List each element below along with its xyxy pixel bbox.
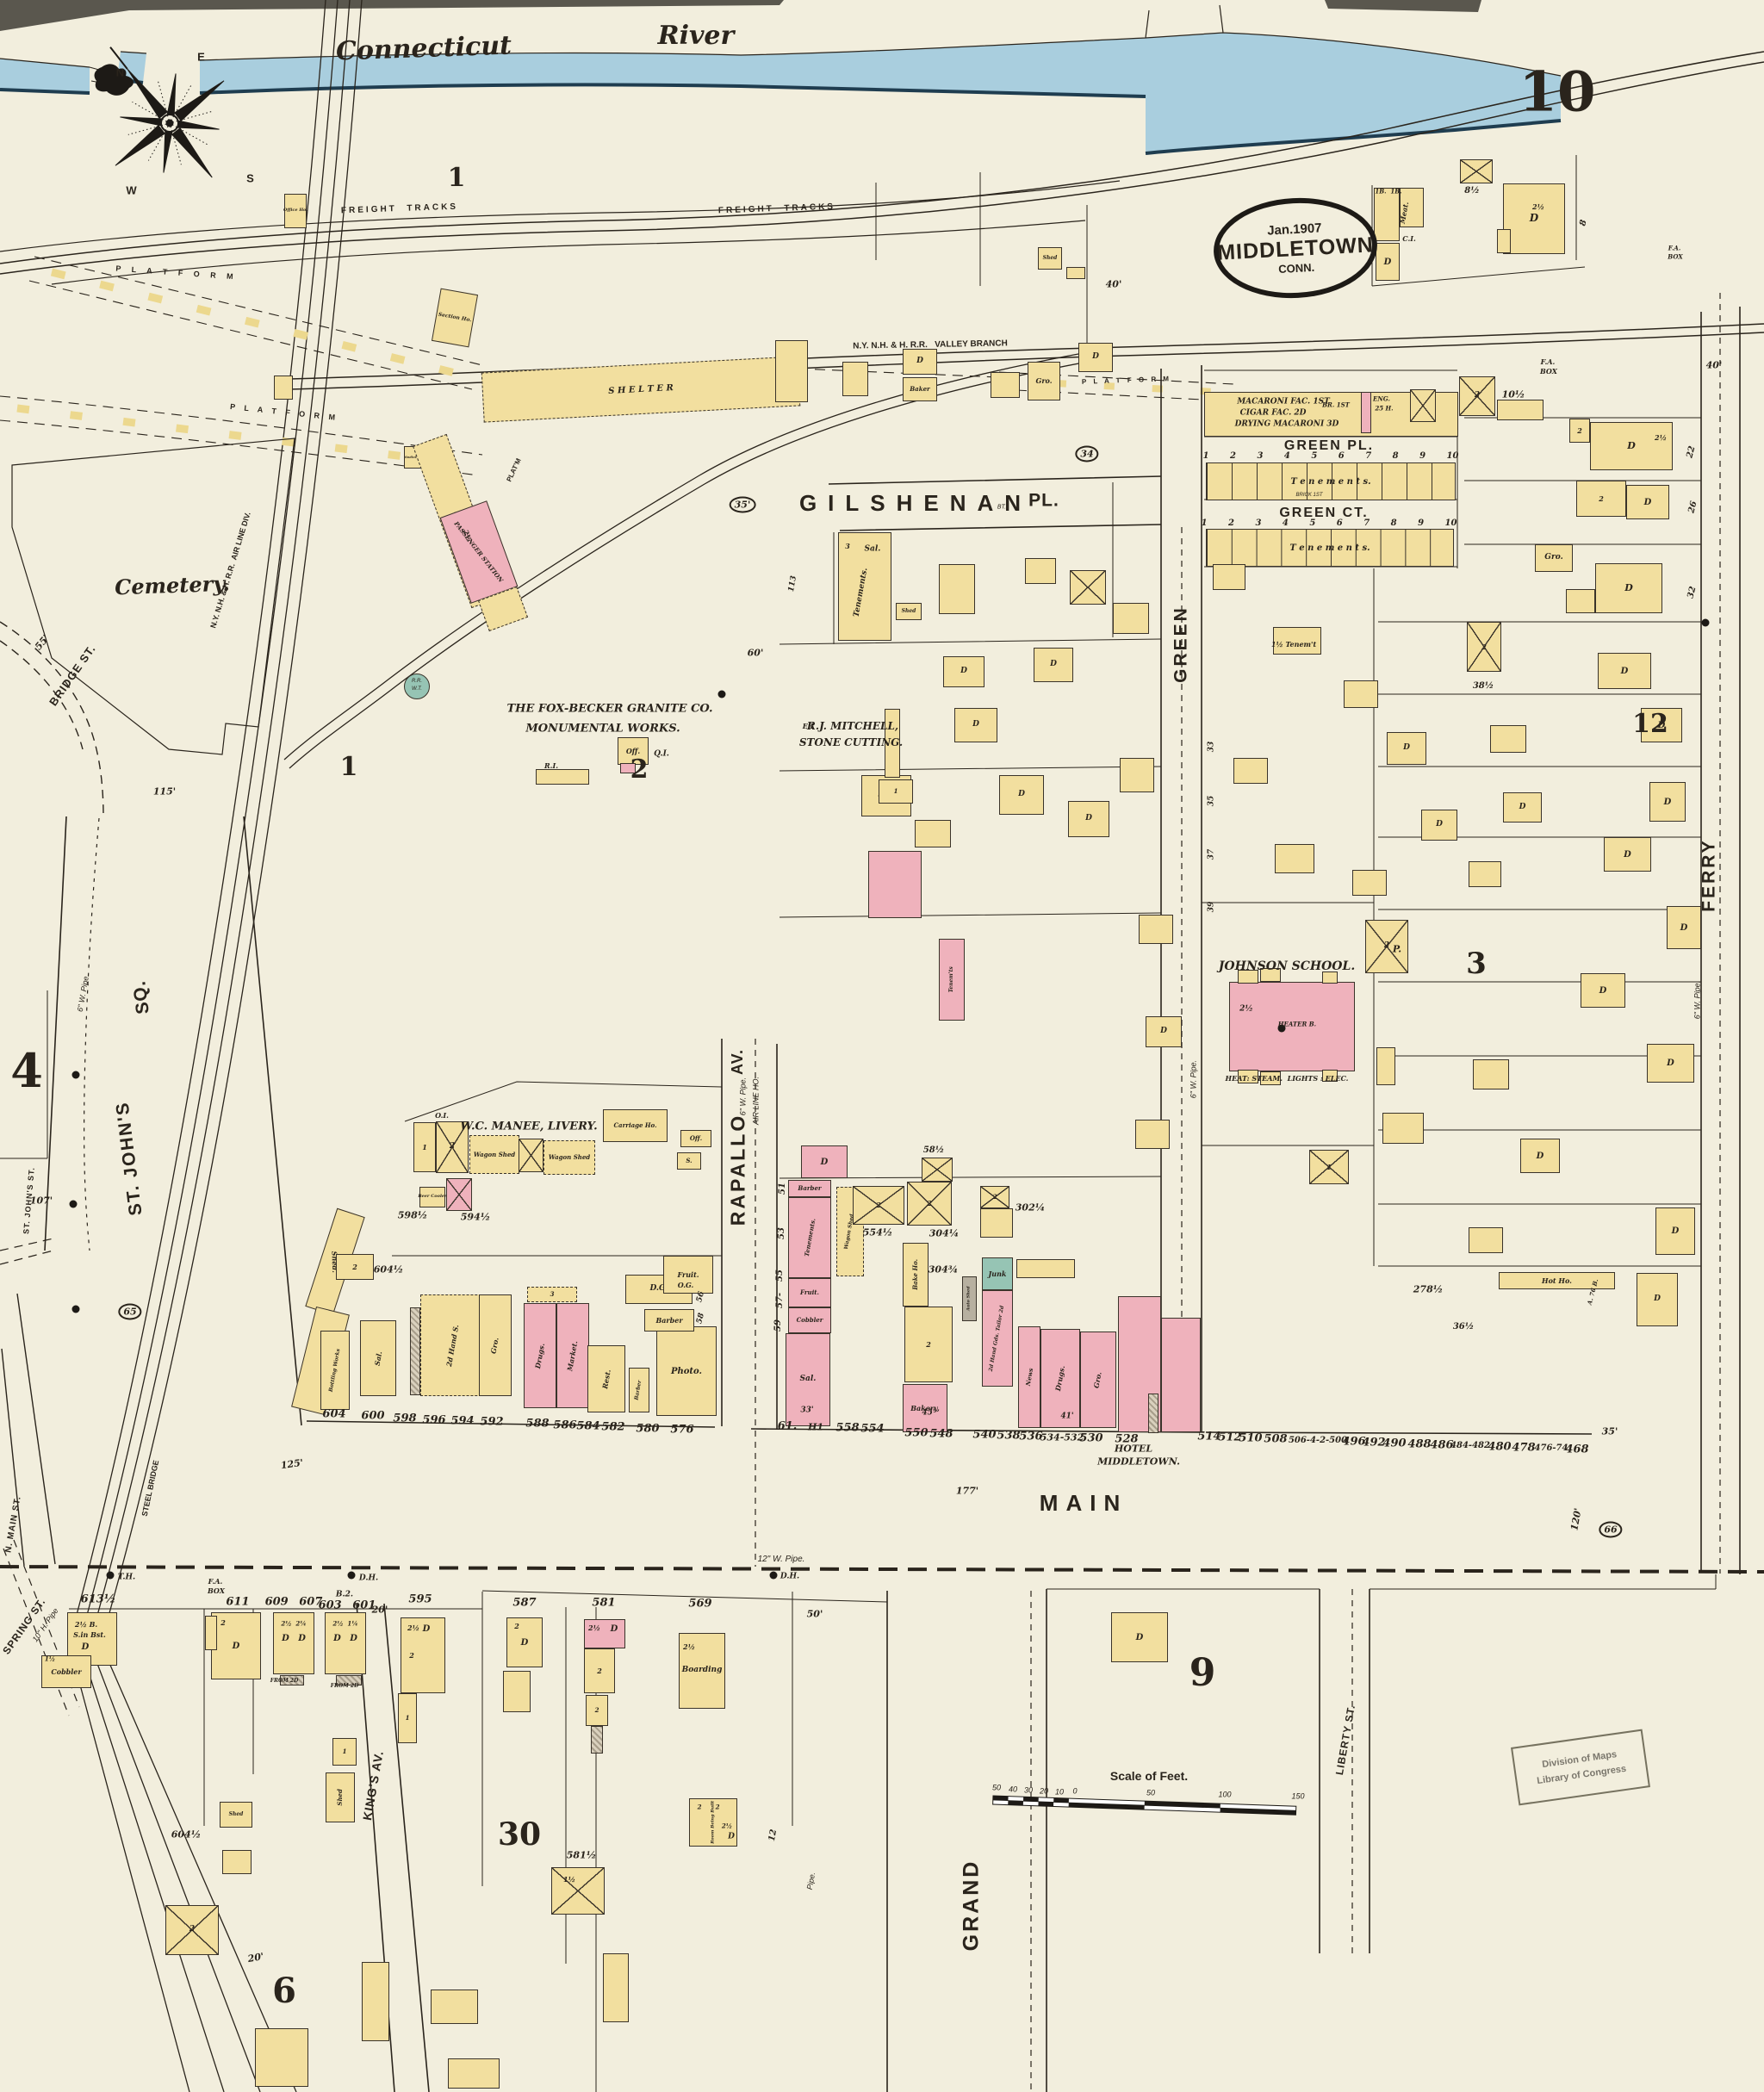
place-label: O.I. <box>435 1112 449 1119</box>
house-number: 538 <box>997 1431 1020 1442</box>
macaroni-factory-label: MACARONI FAC. 1ST <box>1237 399 1330 407</box>
building: D <box>506 1617 543 1667</box>
connecticut-river <box>0 5 1561 153</box>
block-number: 3 <box>1466 949 1487 978</box>
block-number: 30 <box>498 1819 541 1850</box>
place-label: 2 <box>220 1619 226 1626</box>
place-label: R.I. <box>544 762 558 769</box>
building <box>1135 1120 1170 1149</box>
building-label: 2 <box>927 1200 932 1207</box>
place-label: F.A. <box>1541 358 1556 365</box>
compass-letter: S <box>246 173 255 184</box>
house-number: 36½ <box>1453 1323 1474 1332</box>
building-label: Fruit. <box>800 1289 819 1296</box>
building <box>1025 558 1056 584</box>
house-number: 609 607 <box>265 1597 323 1608</box>
place-label: 1½ <box>45 1656 55 1662</box>
sanborn-map-sheet: 10 Jan.1907 MIDDLETOWN CONN. Division of… <box>0 0 1764 2092</box>
building-label: 2 <box>352 1263 357 1271</box>
house-number: 488 <box>1407 1439 1431 1450</box>
building-label: Bottling Works <box>328 1348 341 1392</box>
building: D <box>211 1612 261 1679</box>
building: Fruit. <box>788 1278 831 1307</box>
place-label: 2½ <box>722 1823 732 1829</box>
place-label: 1½ Tenem't <box>1271 641 1316 648</box>
building: Shed <box>326 1772 355 1822</box>
block-number: 4 <box>10 1047 43 1094</box>
house-number: 600 <box>361 1411 384 1422</box>
house-number: 53 <box>778 1227 786 1239</box>
map-linework <box>0 0 1764 2092</box>
building-label: 2 <box>876 1201 881 1209</box>
place-label: D <box>728 1834 735 1841</box>
house-number: 278½ <box>1413 1285 1443 1294</box>
building: Wagon Shed <box>469 1135 519 1174</box>
place-label: 1½ <box>563 1876 575 1883</box>
building-label: 2 <box>450 1143 455 1152</box>
house-number: 304¼ <box>929 1229 959 1238</box>
building-label: D <box>521 1638 529 1648</box>
building-label: Drugs. <box>1054 1365 1066 1392</box>
house-number: 604½ <box>171 1830 201 1840</box>
building-label: PASSENGER STATION <box>453 520 505 584</box>
manee-livery-label: W.C. MANEE, LIVERY. <box>460 1121 597 1133</box>
place-label: Q.I. <box>654 751 669 759</box>
building-label: D <box>1624 850 1631 860</box>
building-label: Tenements. <box>803 1218 816 1257</box>
house-number: 586 <box>553 1420 576 1431</box>
building <box>922 1158 953 1182</box>
building: D <box>1637 1273 1678 1326</box>
house-number: 45' <box>922 1410 935 1418</box>
building <box>980 1208 1013 1238</box>
building: 2 <box>1459 376 1495 416</box>
building: Shed <box>896 603 922 620</box>
hydrant-dot <box>718 691 726 698</box>
street-lines <box>0 155 1764 2092</box>
place-label: F.A. <box>1668 245 1681 251</box>
building <box>222 1850 252 1874</box>
utility-label: 6" W. Pipe. <box>1694 981 1702 1019</box>
building-label: D <box>1621 667 1629 676</box>
building <box>1352 870 1387 896</box>
building: D <box>1503 792 1542 823</box>
block-number: 2 <box>630 757 649 783</box>
building: Market. <box>556 1303 589 1408</box>
house-number: 33 <box>1208 742 1216 753</box>
building: Barber <box>629 1368 649 1412</box>
place-label: 2½ 2¼ <box>281 1621 306 1627</box>
building: 1 <box>879 779 913 804</box>
johnson-school-label: JOHNSON SCHOOL. <box>1219 960 1355 972</box>
river-label: Connecticut <box>336 33 512 65</box>
house-number: 530 <box>1079 1433 1102 1444</box>
building-label: D <box>1085 815 1092 823</box>
house-number: 603 601 <box>319 1600 376 1611</box>
building-label: D <box>1654 1295 1661 1304</box>
place-label: 2½ <box>1655 434 1667 441</box>
building-label: D <box>916 357 923 366</box>
junk-shop: Junk <box>982 1257 1013 1290</box>
place-label: E.I <box>803 723 814 729</box>
building <box>255 2028 308 2087</box>
building-label: D <box>821 1158 829 1167</box>
building <box>448 2058 500 2089</box>
building-label: Shed <box>902 609 916 615</box>
house-number: 484-482 <box>1450 1442 1490 1450</box>
building-label: Wagon Shed <box>549 1154 590 1161</box>
building-label: Tenem'ts <box>949 966 955 992</box>
house-number: 584 <box>576 1421 599 1432</box>
building-label: Shed <box>1043 256 1058 262</box>
house-number: 569 <box>688 1598 711 1610</box>
building <box>446 1178 472 1211</box>
house-number: 536 <box>1019 1431 1042 1443</box>
building: Photo. <box>656 1326 717 1416</box>
house-number: 478 <box>1512 1443 1535 1454</box>
building: Barber <box>644 1309 694 1332</box>
building-label: 2 <box>993 1194 997 1201</box>
place-label: 2½ <box>588 1624 600 1631</box>
place-label: BOX <box>1668 254 1682 260</box>
building: D <box>1649 782 1686 822</box>
house-number: 611 <box>226 1597 249 1608</box>
place-label: BR. 1ST <box>1322 402 1350 408</box>
house-number: 8½ <box>1464 187 1479 196</box>
house-number: 510 <box>1239 1433 1262 1444</box>
scale-tick: 10 <box>1055 1789 1064 1797</box>
building-label: Carriage Ho. <box>613 1122 656 1129</box>
place-label: 2 <box>514 1623 519 1630</box>
house-number: 506-4-2-500 <box>1289 1437 1347 1445</box>
building-label: D <box>1664 798 1672 807</box>
street-label-green: GREEN <box>1172 605 1190 683</box>
dimension-label: 20' <box>372 1605 388 1615</box>
street-label-gilshenan: GILSHENAN <box>799 492 1032 514</box>
building <box>1016 1259 1075 1278</box>
place-label: STONE CUTTING. <box>799 737 903 748</box>
place-label: C.I. <box>1402 235 1416 242</box>
building <box>1374 188 1400 241</box>
building: D <box>1626 485 1669 519</box>
building: 1 <box>1309 1150 1349 1184</box>
place-label: P. <box>1393 945 1401 954</box>
building: D <box>801 1145 848 1178</box>
building: D <box>1598 653 1651 689</box>
building: Rest. <box>587 1345 625 1412</box>
house-number: 594 <box>450 1416 474 1427</box>
scale-of-feet-title: Scale of Feet. <box>1110 1769 1188 1783</box>
street-label-ferry: FERRY <box>1700 838 1718 911</box>
building: News <box>1018 1326 1040 1428</box>
building: D <box>1667 906 1701 949</box>
building: 2 <box>1365 920 1408 973</box>
building-label: 2 <box>189 1926 195 1934</box>
building-label: 2 <box>926 1341 931 1349</box>
building <box>1382 1113 1424 1144</box>
building: D <box>1068 801 1109 837</box>
house-number: 39 <box>1208 902 1216 913</box>
building: D <box>1604 837 1651 872</box>
building-label: Barber <box>798 1185 821 1192</box>
place-label: 2½ <box>683 1643 695 1650</box>
place-label: T.H. <box>118 1574 135 1582</box>
place-label: D <box>611 1625 618 1634</box>
building <box>1566 589 1595 613</box>
building-label: 2d Hand Gds. Tailor 2d <box>989 1305 1006 1371</box>
building-label: 2d Hand S. <box>445 1324 460 1367</box>
stamp-state: CONN. <box>1278 260 1315 275</box>
building <box>1460 159 1493 183</box>
house-number: 302¼ <box>1016 1203 1045 1213</box>
place-label: S.in Bst. <box>73 1631 106 1638</box>
place-label: D D <box>282 1635 306 1643</box>
green-ct-tenements: T e n e m e n t s. <box>1206 529 1454 567</box>
building: D <box>1520 1139 1560 1173</box>
building-label: Rest. <box>601 1369 612 1389</box>
railroad-tracks <box>0 0 1764 2092</box>
building-label: 2 <box>595 1707 599 1714</box>
place-label: MONUMENTAL WORKS. <box>525 723 680 735</box>
building <box>1070 570 1106 605</box>
scale-tick: 50 <box>992 1785 1001 1792</box>
building-label: Sal. <box>373 1350 383 1366</box>
place-label: D D <box>333 1635 357 1643</box>
building <box>1490 725 1526 753</box>
building <box>1469 861 1501 887</box>
building-label: S H E L T E R <box>608 383 674 396</box>
building-label: Junk <box>989 1270 1007 1278</box>
compass-letter: E <box>197 52 206 63</box>
building: Gro. <box>479 1294 512 1396</box>
building-label: Bake Ho. <box>912 1259 919 1290</box>
building: D <box>1421 810 1457 841</box>
compass-letter: W <box>126 185 137 196</box>
building <box>991 372 1020 398</box>
building: 1 <box>398 1693 417 1743</box>
building <box>1344 680 1378 708</box>
mitchell-stone-cutting-label: R.J. MITCHELL, <box>807 721 898 731</box>
place-label: 2 <box>409 1652 414 1659</box>
building-label: Wagon Shed <box>474 1152 515 1158</box>
street-label: PL. <box>1028 492 1059 510</box>
building-label: D <box>1136 1633 1144 1642</box>
building: 2d Hand S. <box>420 1294 486 1396</box>
place-label: O.G. <box>678 1282 694 1288</box>
building <box>431 1990 478 2024</box>
house-number: 604 <box>322 1409 345 1420</box>
building-label: Hot Ho. <box>1542 1277 1572 1285</box>
building: D <box>1387 732 1426 765</box>
place-label: 2½ <box>1532 203 1544 210</box>
utility-label: 6" W. Pipe. <box>1190 1060 1198 1098</box>
hydrant-dot <box>70 1201 78 1208</box>
building: Gro. <box>1028 362 1060 400</box>
building <box>1469 1227 1503 1253</box>
building-label: Drugs. <box>534 1343 546 1369</box>
house-number: 61. <box>778 1421 798 1432</box>
building: 2 <box>1467 622 1501 672</box>
building-label: Barber <box>635 1380 644 1400</box>
building <box>842 362 868 396</box>
house-number: 1 2 3 4 5 6 7 8 9 10 <box>1202 519 1457 528</box>
block-number: 1 <box>340 754 358 780</box>
building: Wagon Shed <box>543 1140 595 1175</box>
building <box>1148 1394 1158 1433</box>
building: Office Ho. <box>284 194 307 228</box>
building: Tenements. <box>788 1197 831 1278</box>
building-label: D <box>1530 213 1538 224</box>
circled-number: 35' <box>730 497 756 513</box>
building <box>1376 1047 1395 1085</box>
house-number: 558 <box>835 1423 859 1434</box>
building: Carriage Ho. <box>603 1109 668 1142</box>
utility-label: 12" W. Pipe. <box>758 1555 805 1564</box>
building <box>1161 1318 1201 1432</box>
place-label: 2½ B. <box>75 1621 97 1628</box>
building: D <box>1503 183 1565 254</box>
hydrant-dot <box>107 1572 115 1580</box>
compass-rose <box>54 3 269 222</box>
scale-tick: 50 <box>1146 1790 1155 1797</box>
building-label: 2 <box>1475 392 1480 400</box>
house-number: 59 <box>774 1319 783 1332</box>
building-label: D <box>1680 923 1688 933</box>
building-label: Auto Shed <box>967 1287 972 1312</box>
building-label: D <box>1599 986 1607 996</box>
building: D <box>903 349 937 375</box>
scale-tick: 40 <box>1009 1786 1017 1794</box>
house-number: 598 <box>393 1413 416 1425</box>
place-label: FROM 2D <box>270 1679 299 1684</box>
building: 2 <box>1576 481 1626 517</box>
building <box>1497 400 1543 420</box>
building: Beer Cooler <box>419 1187 445 1207</box>
building <box>410 1307 420 1395</box>
compass-letter: N <box>116 67 125 78</box>
building-label: Beer Cooler <box>418 1195 446 1200</box>
building-label: 1 <box>422 1144 427 1152</box>
building: 2 <box>980 1186 1009 1208</box>
building-label: D <box>233 1642 240 1651</box>
house-number: 540 <box>972 1430 996 1441</box>
building: Gro. <box>1080 1332 1116 1428</box>
place-label: HEATER B. <box>1278 1021 1316 1027</box>
building-label: D <box>1384 258 1392 267</box>
building-label: 2 <box>1384 942 1389 951</box>
building: D <box>1655 1207 1695 1255</box>
building-label: 1 <box>406 1715 410 1722</box>
building-label: Gro. <box>1035 377 1052 385</box>
building-label: D <box>1519 804 1526 812</box>
building-label: 2 <box>597 1667 602 1675</box>
building <box>362 1962 389 2041</box>
building <box>205 1616 217 1650</box>
place-label: FROM 2D <box>331 1684 359 1689</box>
building-label: Fruit. <box>677 1271 699 1279</box>
building-label: D <box>1160 1027 1167 1036</box>
building: Tenem'ts <box>939 939 965 1021</box>
building: D <box>1595 563 1662 613</box>
building <box>591 1726 603 1754</box>
green-pl-tenements: T e n e m e n t s. <box>1206 462 1456 500</box>
building-label: Shed <box>337 1789 344 1806</box>
scale-tick: 20 <box>1040 1788 1048 1796</box>
building-label: 2 <box>1599 495 1604 503</box>
place-label: D.H. <box>780 1574 799 1581</box>
house-number: 613½ <box>81 1594 116 1605</box>
building: 2 <box>165 1905 219 1955</box>
building-label: Shed <box>229 1812 244 1818</box>
building <box>1275 844 1314 873</box>
place-label: D.H. <box>359 1575 378 1583</box>
building: Off. <box>680 1130 711 1147</box>
building-label: D <box>1050 661 1057 669</box>
utility-label: BT. <box>997 505 1006 511</box>
street-label-grand: GRAND <box>961 1859 983 1952</box>
place-label: B.2. <box>336 1592 353 1599</box>
cemetery-label: Cemetery. <box>115 574 230 599</box>
utility-label: BRICK 1ST <box>1295 493 1322 498</box>
place-label: MIDDLETOWN. <box>1097 1457 1180 1467</box>
house-number: 550 <box>904 1428 928 1439</box>
building: Bake Ho. <box>903 1243 929 1307</box>
house-number: 41' <box>1060 1413 1073 1421</box>
sheet-number: 10 <box>1519 60 1595 125</box>
block-number: 9 <box>1189 1654 1216 1692</box>
building: 2 <box>904 1307 953 1382</box>
house-number: 37 <box>1208 849 1216 860</box>
building <box>775 340 808 402</box>
building <box>1361 392 1371 433</box>
house-number: 468 <box>1565 1444 1588 1456</box>
building: D <box>1590 422 1673 470</box>
place-label: 2½ <box>407 1624 419 1631</box>
river-label: River <box>658 23 735 49</box>
building-label: D <box>1672 1226 1680 1236</box>
building: D <box>1078 343 1113 372</box>
auto-shed: Auto Shed <box>962 1276 977 1321</box>
building <box>536 769 589 785</box>
house-number: 594½ <box>461 1213 490 1222</box>
stamp-city: MIDDLETOWN <box>1217 233 1375 265</box>
street-label: SQ. <box>130 979 152 1015</box>
building <box>939 564 975 614</box>
house-number: 595 <box>408 1594 432 1605</box>
house-number: H1 <box>808 1423 823 1432</box>
fox-becker-granite-label: THE FOX-BECKER GRANITE CO. <box>506 704 712 715</box>
building-label: D <box>1627 441 1636 451</box>
building: 2 <box>853 1186 904 1225</box>
place-label: 1B. <box>1390 189 1401 195</box>
block-number: 6 <box>272 1974 296 2008</box>
building: D <box>954 708 997 742</box>
house-number: 592 <box>480 1417 503 1428</box>
place-label: D <box>82 1643 90 1652</box>
scan-artifacts <box>0 0 1481 31</box>
building <box>1120 758 1154 792</box>
place-label: CIGAR FAC. 2D <box>1240 410 1307 418</box>
dimension-label: 35' <box>1602 1427 1618 1437</box>
building-label: 1 <box>343 1748 347 1755</box>
house-number: 528 <box>1115 1434 1138 1445</box>
building-label: Boarding <box>682 1667 723 1675</box>
building: 3 <box>527 1287 577 1302</box>
scale-tick: 30 <box>1024 1787 1033 1795</box>
utility-label: R.R. <box>412 679 422 684</box>
building-label: D <box>1537 1152 1544 1161</box>
building-label: 2 <box>1577 427 1582 435</box>
